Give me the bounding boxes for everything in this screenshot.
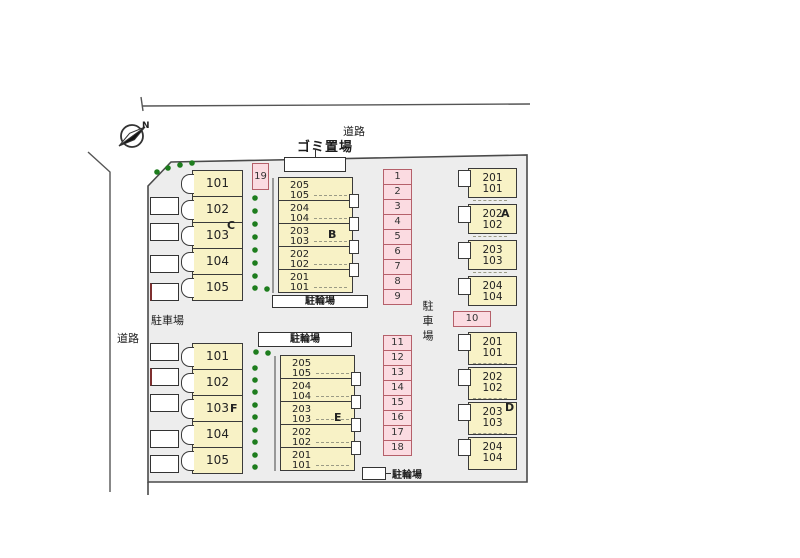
room-e-202-102: 202 102 xyxy=(280,424,355,448)
parking-stall-2: 2 xyxy=(383,184,412,200)
parking-stall-3: 3 xyxy=(383,199,412,215)
room-number-lower: 104 xyxy=(482,291,502,303)
parking-stall-13: 13 xyxy=(383,365,412,381)
room-number-lower: 105 xyxy=(290,191,352,201)
parking-stall-white xyxy=(150,223,179,241)
parking-stall-1: 1 xyxy=(383,169,412,185)
parking-stall-7: 7 xyxy=(383,259,412,275)
room-d-201-101: 201 101 xyxy=(468,332,517,365)
room-e-203-103: 203 103 xyxy=(280,401,355,425)
room-b-205-105: 205 105 xyxy=(278,177,353,201)
room-number-lower: 101 xyxy=(292,461,354,471)
parking-lot-label-left: 駐車場 xyxy=(151,312,184,328)
parking-stall-17: 17 xyxy=(383,425,412,441)
building-a: 201 101 202 102 203 103 204 104 xyxy=(468,168,517,306)
parking-stall-9: 9 xyxy=(383,289,412,305)
parking-stall-11: 11 xyxy=(383,335,412,351)
parking-stall-15: 15 xyxy=(383,395,412,411)
parking-stall-white xyxy=(150,394,179,412)
room-e-204-104: 204 104 xyxy=(280,378,355,402)
room-b-201-101: 201 101 xyxy=(278,269,353,293)
room-number-lower: 104 xyxy=(290,214,352,224)
north-label: N xyxy=(142,121,150,131)
road-label-left: 道路 xyxy=(117,330,139,346)
bike-bottom-pointer-line xyxy=(386,473,391,474)
building-a-letter: A xyxy=(501,207,510,220)
room-c-104: 104 xyxy=(192,248,243,275)
building-b: 205 105 204 104 203 103 202 102 201 101 xyxy=(278,177,353,293)
room-f-101: 101 xyxy=(192,343,243,370)
parking-stall-white xyxy=(150,197,179,215)
room-number-lower: 102 xyxy=(290,260,352,270)
bike-parking-box-b: 駐輪場 xyxy=(272,295,368,308)
room-c-101: 101 xyxy=(192,170,243,197)
room-d-202-102: 202 102 xyxy=(468,367,517,400)
parking-stall-12: 12 xyxy=(383,350,412,366)
room-number-lower: 103 xyxy=(292,415,354,425)
road-line-top-tick xyxy=(141,97,143,111)
building-e-letter: E xyxy=(334,411,342,424)
site-plan-canvas: N 道路 道路 駐車場 駐車場 ゴミ置場 xyxy=(0,0,800,558)
room-a-203-103: 203 103 xyxy=(468,240,517,270)
building-f-letter: F xyxy=(230,402,238,415)
parking-stall-white xyxy=(150,368,179,386)
parking-stall-10: 10 xyxy=(453,311,491,327)
parking-stall-16: 16 xyxy=(383,410,412,426)
parking-lot-label-vertical: 駐車場 xyxy=(419,300,435,362)
parking-stall-8: 8 xyxy=(383,274,412,290)
room-number-lower: 101 xyxy=(290,283,352,293)
room-d-204-104: 204 104 xyxy=(468,437,517,470)
parking-stall-white xyxy=(150,455,179,473)
parking-stalls-1-9: 1 2 3 4 5 6 7 8 9 xyxy=(383,169,412,305)
room-number-lower: 104 xyxy=(292,392,354,402)
room-a-204-104: 204 104 xyxy=(468,276,517,306)
room-f-102: 102 xyxy=(192,369,243,396)
room-c-102: 102 xyxy=(192,196,243,223)
garbage-area-label: ゴミ置場 xyxy=(297,136,353,155)
road-line-top xyxy=(142,104,530,106)
building-d-letter: D xyxy=(505,401,514,414)
bike-parking-label-bottom: 駐輪場 xyxy=(392,466,422,481)
room-f-105: 105 xyxy=(192,447,243,474)
parking-stall-white xyxy=(150,255,179,273)
room-number-lower: 103 xyxy=(290,237,352,247)
room-number-lower: 102 xyxy=(482,382,502,394)
parking-stalls-11-18: 11 12 13 14 15 16 17 18 xyxy=(383,335,412,456)
room-a-201-101: 201 101 xyxy=(468,168,517,198)
room-number-lower: 103 xyxy=(482,417,502,429)
parking-stall-white xyxy=(150,430,179,448)
garbage-area-box xyxy=(284,157,346,172)
parking-stall-4: 4 xyxy=(383,214,412,230)
parking-stall-white xyxy=(150,283,179,301)
room-number-lower: 105 xyxy=(292,369,354,379)
building-c: 101 102 103 104 105 xyxy=(192,170,243,301)
north-arrow-icon: N xyxy=(119,121,150,147)
room-b-204-104: 204 104 xyxy=(278,200,353,224)
parking-stall-6: 6 xyxy=(383,244,412,260)
room-c-103: 103 xyxy=(192,222,243,249)
room-number-lower: 102 xyxy=(482,219,502,231)
building-e: 205 105 204 104 203 103 202 102 201 101 xyxy=(280,355,355,471)
room-number-lower: 103 xyxy=(482,255,502,267)
room-c-105: 105 xyxy=(192,274,243,301)
room-b-202-102: 202 102 xyxy=(278,246,353,270)
room-number-lower: 102 xyxy=(292,438,354,448)
room-e-205-105: 205 105 xyxy=(280,355,355,379)
parking-stall-5: 5 xyxy=(383,229,412,245)
bike-parking-box-e: 駐輪場 xyxy=(258,332,352,347)
room-number-lower: 101 xyxy=(482,347,502,359)
road-line-left xyxy=(88,152,110,492)
room-f-104: 104 xyxy=(192,421,243,448)
parking-stall-14: 14 xyxy=(383,380,412,396)
building-b-letter: B xyxy=(328,228,336,241)
bike-parking-box-bottom xyxy=(362,467,386,480)
parking-stall-19: 19 xyxy=(252,163,269,190)
parking-stall-18: 18 xyxy=(383,440,412,456)
room-b-203-103: 203 103 xyxy=(278,223,353,247)
parking-stall-white xyxy=(150,343,179,361)
building-c-letter: C xyxy=(227,219,235,232)
room-number-lower: 104 xyxy=(482,452,502,464)
room-e-201-101: 201 101 xyxy=(280,447,355,471)
room-number-lower: 101 xyxy=(482,183,502,195)
